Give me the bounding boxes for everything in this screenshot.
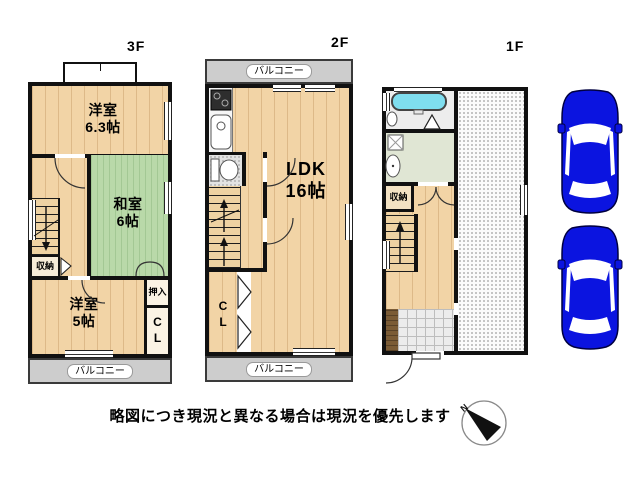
door-opening	[68, 276, 90, 280]
floor-title-2f: 2F	[331, 34, 349, 50]
room-storage-3f: 収納	[32, 255, 60, 276]
room-name: 洋室	[65, 102, 141, 119]
room-closet-2f: CL	[209, 284, 237, 346]
wall	[414, 214, 418, 272]
room-storage-1f: 収納	[386, 186, 414, 212]
window	[164, 102, 172, 140]
floor-plan-sheet: 3F 2F 1F 収納 押入 CL 洋室 6.3帖 和室	[0, 0, 640, 480]
genkan-tiles	[398, 309, 454, 351]
balcony-door	[305, 84, 335, 92]
room-size: 5帖	[46, 313, 122, 330]
room-name: LDK	[265, 158, 347, 180]
closet-label: CL	[216, 299, 230, 331]
kitchen-counter	[209, 88, 233, 154]
genkan-step	[386, 309, 398, 351]
balcony-door	[65, 350, 113, 358]
door-opening	[263, 218, 267, 242]
window	[394, 87, 442, 95]
toilet-room	[209, 152, 242, 186]
closet-doors	[237, 272, 251, 352]
storage-label: 収納	[36, 261, 54, 272]
plan-2f: LDK 16帖 CL	[205, 84, 353, 356]
oshiire-label: 押入	[148, 287, 166, 298]
room-label-west2: 洋室 5帖	[46, 296, 122, 330]
balcony-2f-bottom: バルコニー	[205, 356, 353, 382]
room-size: 6帖	[90, 213, 166, 230]
stairs-1f	[386, 214, 414, 272]
floor-title-3f: 3F	[127, 38, 145, 54]
balcony-2f-top: バルコニー	[205, 59, 353, 84]
balcony-3f: バルコニー	[28, 358, 172, 384]
floor-title-1f: 1F	[506, 38, 524, 54]
plan-1f: 収納	[382, 87, 528, 355]
disclaimer-text: 略図につき現況と異なる場合は現況を優先します	[60, 405, 500, 426]
entrance-opening	[416, 351, 444, 355]
balcony-door	[273, 84, 301, 92]
entrance-door	[386, 353, 446, 385]
washroom	[386, 133, 454, 182]
balcony-label: バルコニー	[246, 362, 312, 377]
window	[520, 185, 528, 215]
balcony-label: バルコニー	[246, 64, 312, 79]
room-label-west1: 洋室 6.3帖	[65, 102, 141, 136]
car-icon	[558, 88, 622, 214]
garage	[458, 91, 524, 351]
window	[28, 200, 36, 240]
door-arc	[267, 218, 293, 244]
wall	[242, 152, 246, 186]
window	[164, 182, 172, 214]
door-opening	[418, 182, 448, 186]
car-icon	[558, 224, 622, 350]
window	[382, 241, 390, 269]
balcony-door	[293, 348, 335, 356]
folding-door-icon	[61, 258, 71, 275]
storage-label: 収納	[389, 192, 407, 203]
stairs-3f	[32, 198, 60, 255]
room-label-ldk: LDK 16帖	[265, 158, 347, 202]
room-size: 6.3帖	[65, 119, 141, 136]
balcony-label: バルコニー	[67, 364, 133, 379]
room-size: 16帖	[265, 180, 347, 202]
door-arc	[55, 158, 85, 188]
door-opening	[55, 154, 85, 158]
room-closet-3f: CL	[144, 308, 168, 354]
closet-label: CL	[151, 315, 165, 347]
window	[382, 93, 390, 111]
room-label-washitsu: 和室 6帖	[90, 196, 166, 230]
stairs-2f	[209, 186, 241, 268]
window	[345, 204, 353, 240]
room-name: 洋室	[46, 296, 122, 313]
door-arc	[386, 359, 412, 383]
bathroom	[386, 91, 454, 129]
room-name: 和室	[90, 196, 166, 213]
room-oshiire: 押入	[144, 280, 168, 308]
plan-3f: 収納 押入 CL 洋室 6.3帖 和室 6帖 洋室 5帖	[28, 82, 172, 358]
